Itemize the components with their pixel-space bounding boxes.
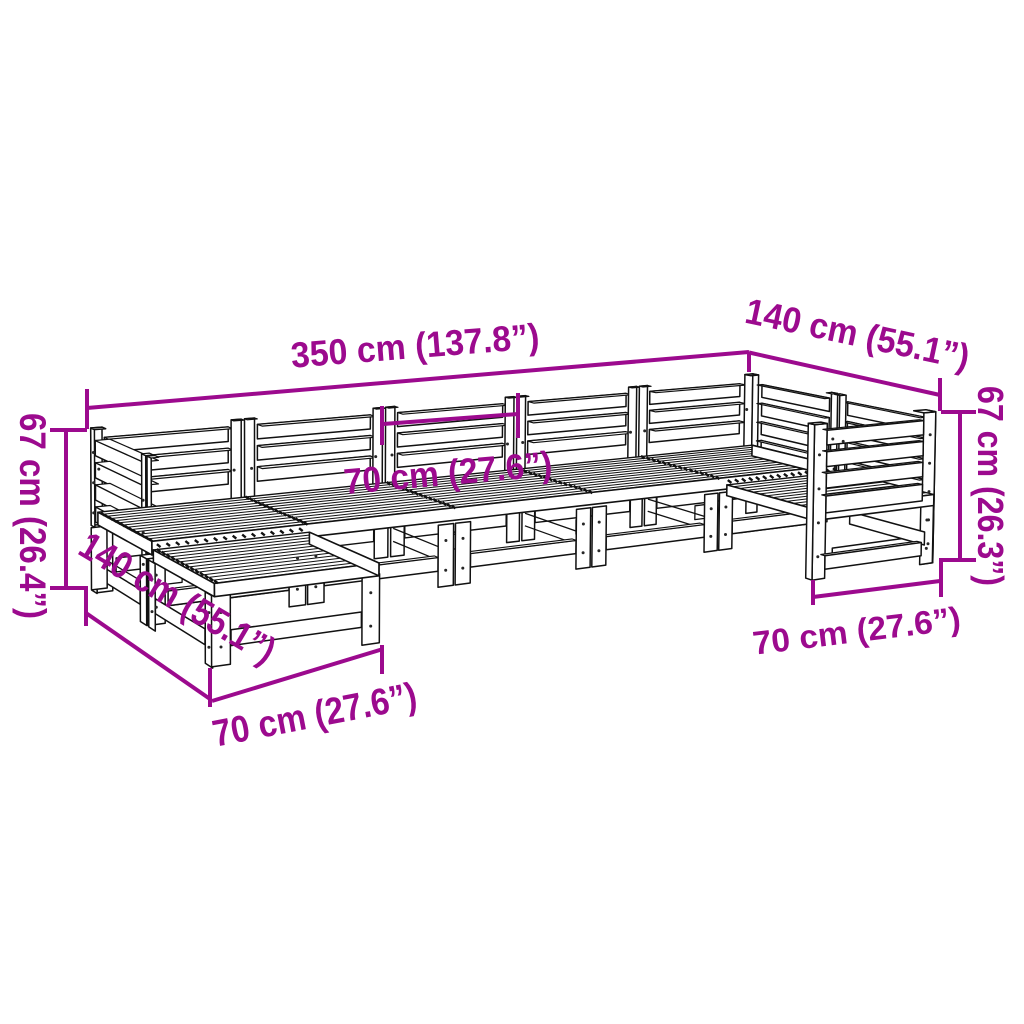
svg-text:67 cm (26.3”): 67 cm (26.3”)	[970, 386, 1011, 586]
svg-text:67 cm (26.4”): 67 cm (26.4”)	[12, 413, 53, 619]
